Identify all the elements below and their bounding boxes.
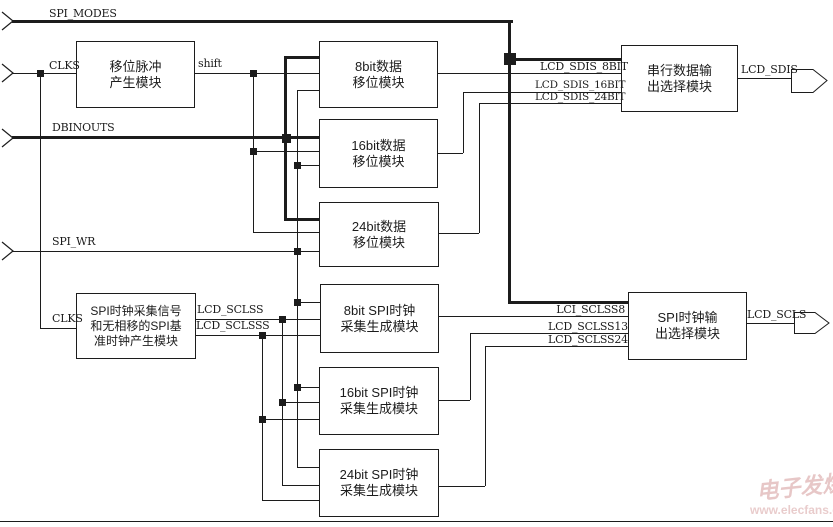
module-label: 16bit SPI时钟	[340, 385, 419, 401]
signal-label-lci-sclss8: LCI_SCLSS8	[553, 304, 625, 315]
module-data24-shift: 24bit数据 移位模块	[319, 202, 439, 267]
module-label: SPI时钟采集信号	[90, 304, 181, 319]
junction-sclsss-clk16	[259, 416, 266, 423]
junction-dbinouts	[282, 134, 291, 143]
module-data8-shift: 8bit数据 移位模块	[319, 41, 438, 108]
input-port-icon-spi-modes	[1, 11, 15, 31]
junction-spi-modes	[504, 53, 516, 65]
signal-label-lcd-sclsss: LCD_SCLSSS	[196, 320, 270, 331]
wire-dbinouts-bus	[12, 136, 319, 139]
module-clk24-capture: 24bit SPI时钟 采集生成模块	[319, 449, 439, 517]
wire-lcd-sdis-out	[737, 78, 792, 79]
signal-label-lcd-sdis-24bit: LCD_SDIS_24BIT	[535, 92, 618, 103]
wire-clks-branch-vertical	[40, 73, 41, 328]
signal-label-dbinouts: DBINOUTS	[52, 122, 114, 133]
wire-dbinouts-to-data8	[284, 56, 319, 59]
wire-spi-wr	[12, 251, 319, 252]
module-label: 24bit数据	[352, 219, 406, 235]
signal-label-lcd-sclss: LCD_SCLSS	[197, 304, 263, 315]
wire-clks-in	[12, 73, 76, 74]
wire-data24-out-a	[437, 233, 479, 234]
signal-label-lcd-sdis-8bit: LCD_SDIS_8BIT	[540, 61, 618, 72]
input-port-icon-spi-wr	[1, 241, 15, 261]
module-label: 8bit SPI时钟	[344, 303, 416, 319]
junction-clks	[37, 70, 44, 77]
module-clk16-capture: 16bit SPI时钟 采集生成模块	[319, 367, 439, 435]
wire-clk24-out-up	[485, 346, 486, 486]
wire-clk16-out-a	[438, 400, 470, 401]
junction-spiwr-clk16	[294, 384, 301, 391]
signal-label-spi-wr: SPI_WR	[52, 236, 95, 247]
wire-shift-to-data24	[253, 232, 319, 233]
module-shift-pulse-generator: 移位脉冲 产生模块	[76, 41, 195, 108]
module-label: 8bit数据	[355, 59, 402, 75]
signal-label-lcd-sdis-16bit: LCD_SDIS_16BIT	[535, 80, 618, 91]
wire-spi-modes-bus-top	[12, 20, 513, 23]
wire-sclss24	[485, 346, 628, 347]
module-label: 采集生成模块	[340, 483, 418, 499]
input-port-icon-dbinouts	[1, 128, 15, 148]
module-label: 移位模块	[352, 75, 404, 91]
wire-shift-to-data16	[253, 151, 319, 152]
module-clk8-capture: 8bit SPI时钟 采集生成模块	[320, 284, 439, 353]
module-label: 出选择模块	[655, 326, 720, 342]
signal-label-spi-modes: SPI_MODES	[49, 8, 117, 19]
junction-spiwr-clk8	[294, 299, 301, 306]
module-label: 采集生成模块	[340, 319, 418, 335]
wire-lcd-sclsss-to-clk16	[262, 419, 319, 420]
signal-label-shift: shift	[198, 58, 222, 69]
module-label: 移位模块	[353, 235, 405, 251]
wire-sdis-24bit	[479, 103, 621, 104]
wire-spi-wr-to-clk24	[297, 467, 319, 468]
junction-sclss-clk8	[279, 316, 286, 323]
wire-dbinouts-to-data24	[284, 218, 319, 221]
module-label: 准时钟产生模块	[94, 334, 178, 349]
junction-sclss-clk16	[279, 399, 286, 406]
wire-sdis-8bit	[437, 73, 621, 74]
junction-sclsss-clk8	[259, 332, 266, 339]
module-label: 串行数据输	[647, 63, 712, 79]
wire-data16-out-up	[463, 92, 464, 153]
wire-data16-out-a	[437, 153, 463, 154]
module-spi-clock-output-select: SPI时钟输 出选择模块	[628, 292, 747, 360]
module-label: SPI时钟输	[658, 310, 718, 326]
module-label: 产生模块	[109, 75, 161, 91]
watermark-site: www.elecfans.com	[750, 503, 833, 517]
signal-label-lcd-scls: LCD_SCLS	[747, 309, 806, 320]
module-label: 24bit SPI时钟	[340, 467, 419, 483]
module-serial-data-output-select: 串行数据输 出选择模块	[621, 45, 738, 112]
wire-spi-wr-to-data8	[297, 90, 319, 91]
watermark-brand: 电子发烧友	[755, 462, 833, 506]
module-data16-shift: 16bit数据 移位模块	[319, 119, 438, 188]
signal-label-lcd-sclss24: LCD_SCLSS24	[548, 334, 625, 345]
bottom-border-line	[0, 521, 833, 522]
wire-lcd-sclss-to-clk24	[282, 485, 319, 486]
junction-spiwr-data16	[294, 162, 301, 169]
wire-lcd-sclsss	[195, 335, 320, 336]
module-label: 出选择模块	[647, 79, 712, 95]
module-label: 采集生成模块	[340, 401, 418, 417]
input-port-icon-clks	[1, 63, 15, 83]
wire-sclss8	[438, 316, 628, 317]
signal-label-lcd-sclss13: LCD_SCLSS13	[548, 321, 625, 332]
wire-data24-out-up	[479, 103, 480, 233]
junction-shift	[250, 70, 257, 77]
module-label: 移位模块	[352, 154, 404, 170]
wire-lcd-scls-out	[746, 323, 795, 324]
signal-label-clks: CLKS	[49, 60, 80, 71]
wire-lcd-sclss-to-clk16	[282, 402, 319, 403]
signal-label-lcd-sdis: LCD_SDIS	[741, 64, 798, 75]
junction-spiwr	[294, 248, 301, 255]
module-label: 16bit数据	[351, 138, 405, 154]
wire-spi-wr-branch-vertical	[297, 90, 298, 467]
junction-shift-data16	[250, 148, 257, 155]
wire-clk24-out-a	[438, 486, 485, 487]
wire-clk16-out-up	[470, 333, 471, 400]
wire-lcd-sclsss-to-clk24	[262, 500, 319, 501]
block-diagram-canvas: 移位脉冲 产生模块 8bit数据 移位模块 16bit数据 移位模块 24bit…	[0, 0, 833, 527]
wire-clks-to-clk-base	[40, 328, 76, 329]
module-spi-clock-base-generator: SPI时钟采集信号 和无相移的SPI基 准时钟产生模块	[76, 293, 196, 359]
signal-label-clks2: CLKS	[52, 313, 83, 324]
module-label: 移位脉冲	[109, 59, 161, 75]
module-label: 和无相移的SPI基	[90, 319, 181, 334]
